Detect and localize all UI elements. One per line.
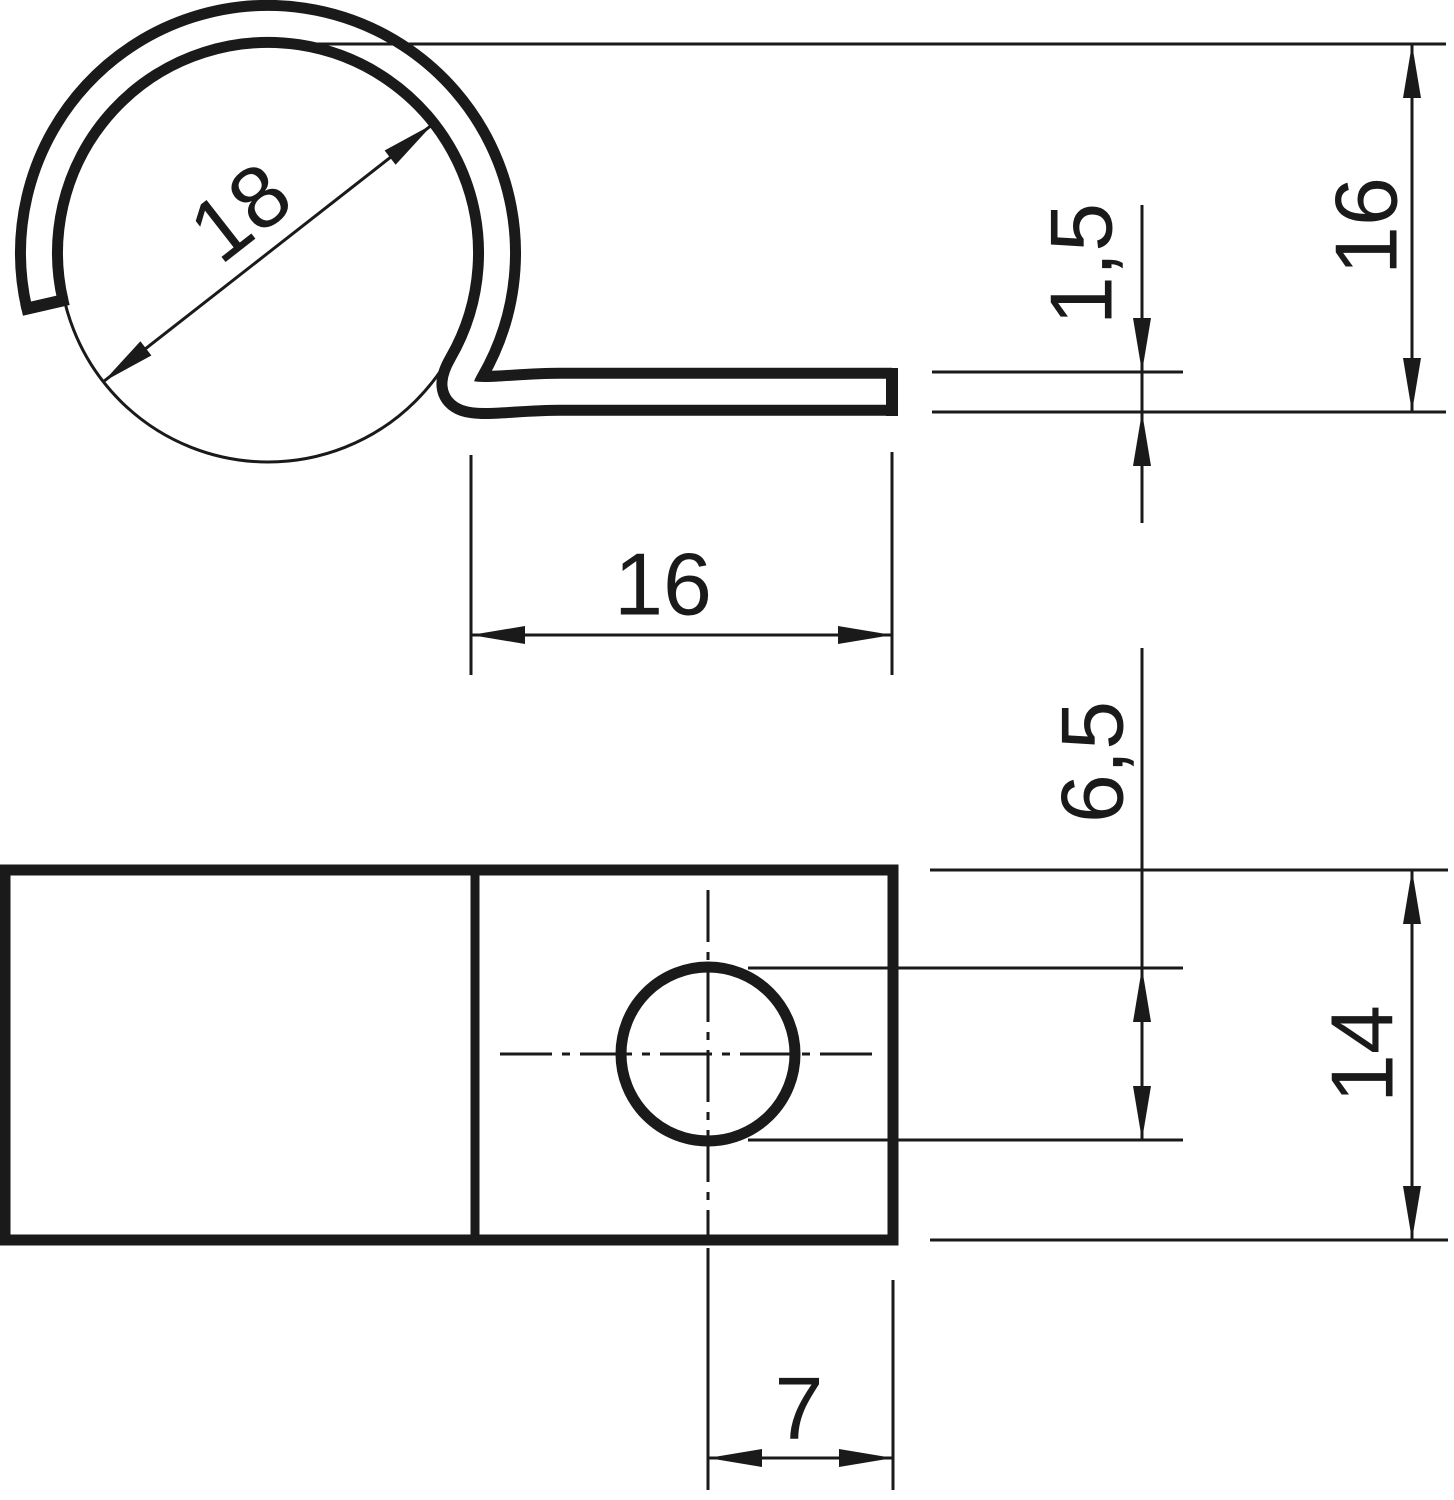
- technical-drawing: 18 16 16 1,5: [0, 0, 1454, 1500]
- dim-label-flat-leg-length: 16: [614, 535, 712, 634]
- dim-arrow: [1133, 318, 1151, 372]
- dim-label-plate-width: 14: [1313, 1005, 1412, 1103]
- dim-arrow: [1133, 968, 1151, 1022]
- dim-arrow: [838, 626, 892, 644]
- dim-arrow: [471, 626, 525, 644]
- dim-label-hole-height: 6,5: [1043, 701, 1142, 823]
- dim-label-cable-diameter: 18: [171, 143, 309, 281]
- dim-arrow: [1133, 1086, 1151, 1140]
- clip-strip-band: [39, 24, 892, 395]
- plan-view: [5, 870, 893, 1240]
- side-view-dimensions: 18 16 16 1,5: [103, 44, 1446, 675]
- dim-label-hole-center-to-edge: 7: [775, 1359, 824, 1458]
- dim-arrow: [708, 1449, 762, 1467]
- dim-arrow: [1133, 412, 1151, 466]
- dim-arrow: [385, 124, 433, 164]
- dim-arrow: [839, 1449, 893, 1467]
- dim-arrow: [1403, 1186, 1421, 1240]
- dim-label-clip-height: 16: [1317, 177, 1416, 275]
- dim-label-material-thickness: 1,5: [1032, 203, 1131, 325]
- dim-arrow: [103, 341, 151, 381]
- dim-line-18: [103, 124, 432, 381]
- side-view: [22, 24, 892, 462]
- dim-arrow: [1403, 358, 1421, 412]
- plan-view-dimensions: 6,5 14 7: [708, 648, 1448, 1490]
- dim-arrow: [1403, 870, 1421, 924]
- dim-arrow: [1403, 44, 1421, 98]
